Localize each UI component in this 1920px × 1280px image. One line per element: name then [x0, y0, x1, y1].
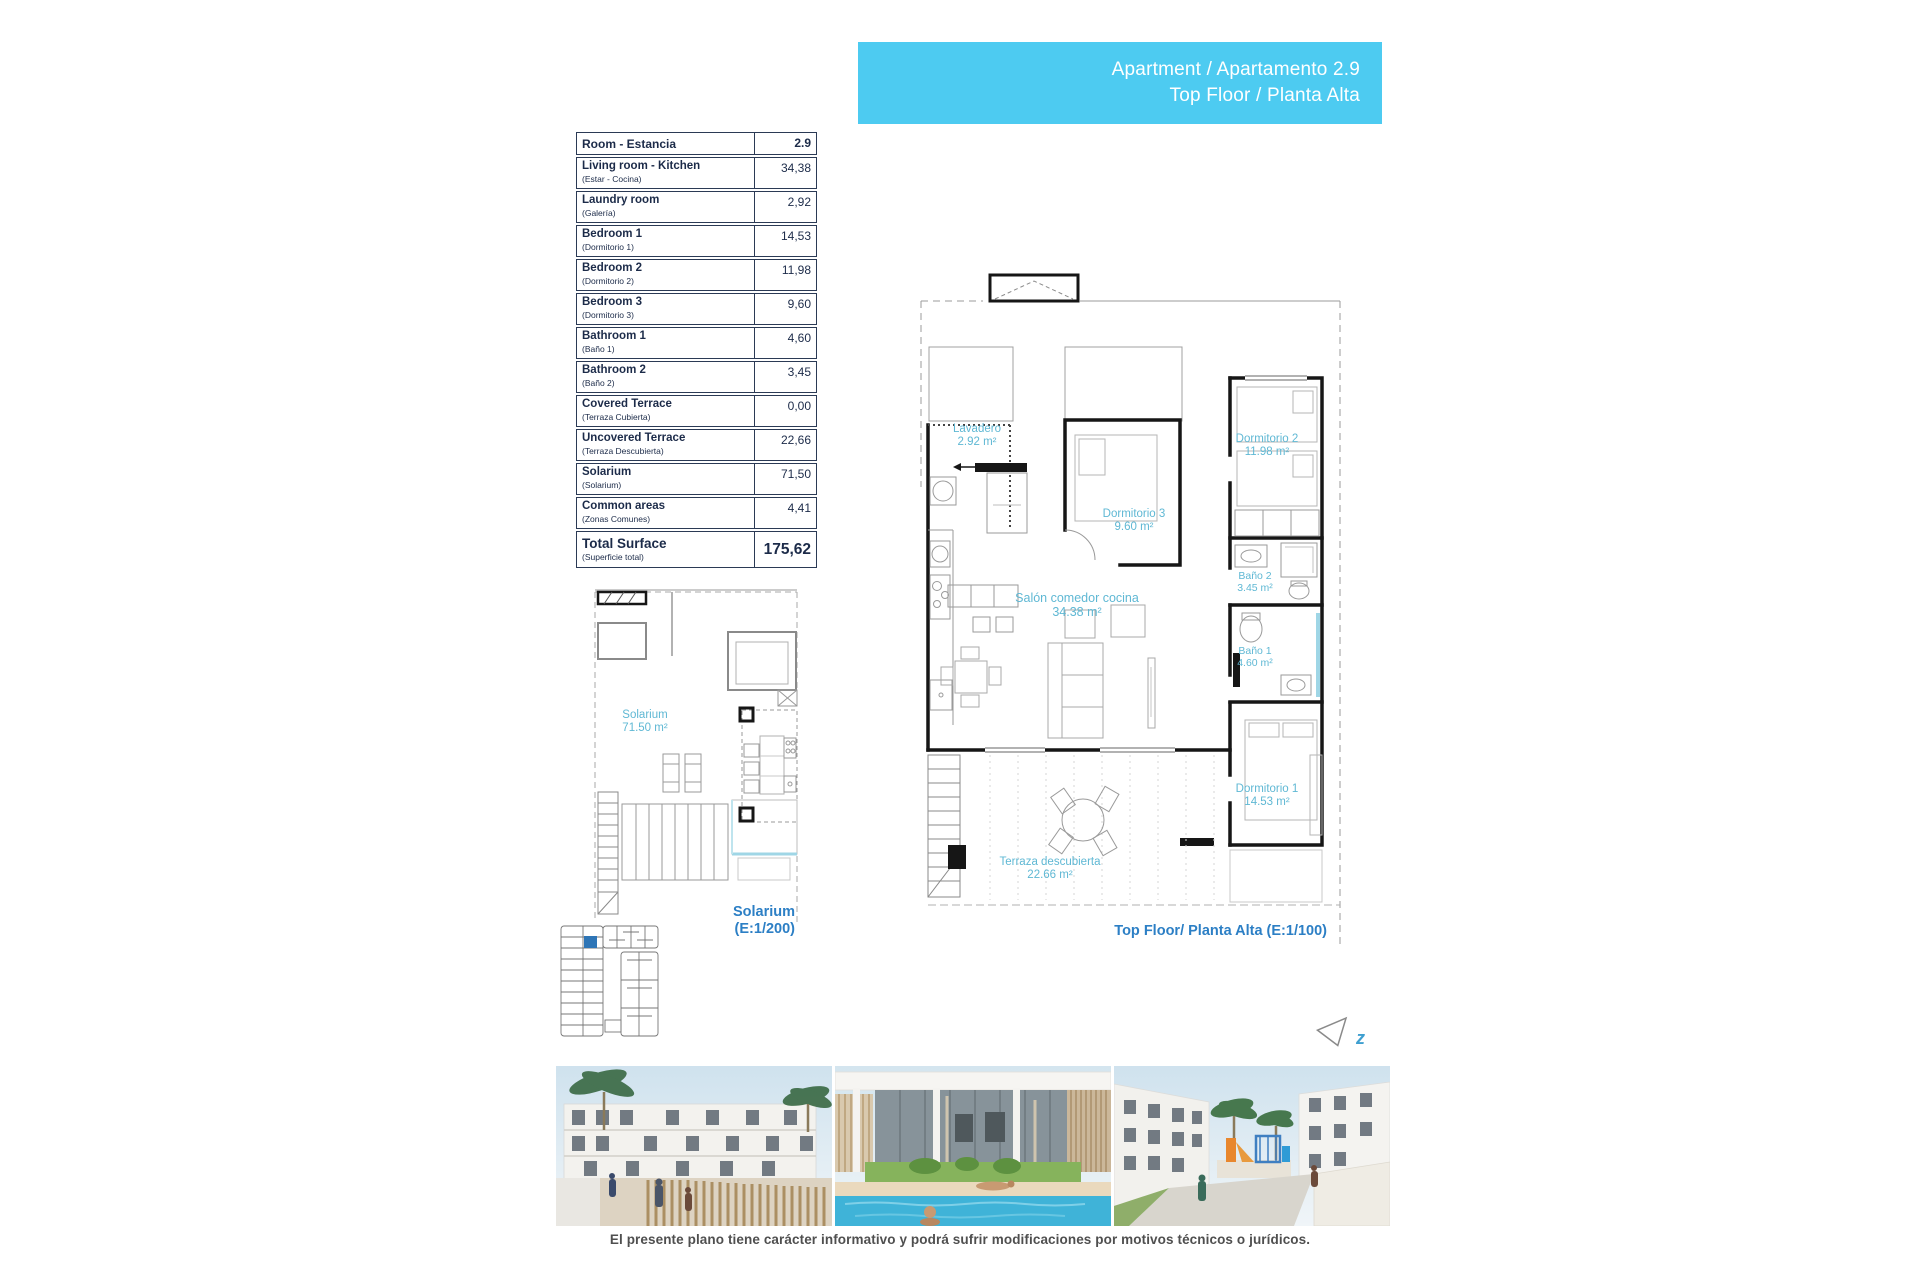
plan-page: Apartment / Apartamento 2.9 Top Floor / …: [0, 0, 1920, 1280]
solarium-area: 71.50 m²: [622, 722, 668, 734]
table-header-unit: 2.9: [755, 133, 816, 154]
row-value: 3,45: [755, 362, 816, 392]
room-area-dormitorio1: 14.53 m²: [1244, 796, 1290, 808]
main-plan-caption: Top Floor/ Planta Alta (E:1/100): [1114, 923, 1327, 939]
row-sublabel: (Baño 1): [582, 344, 750, 355]
north-arrow-letter: z: [1355, 1028, 1365, 1048]
row-value: 71,50: [755, 464, 816, 494]
table-total-row: Total Surface(Superficie total) 175,62: [576, 531, 817, 568]
row-sublabel: (Galería): [582, 208, 750, 219]
table-row: Bedroom 1(Dormitorio 1) 14,53: [576, 225, 817, 257]
room-area-bano2: 3.45 m²: [1237, 582, 1273, 594]
row-label: Bedroom 1: [582, 228, 750, 242]
solarium-caption-line2: (E:1/200): [735, 921, 796, 937]
room-label-salon: Salón comedor cocina: [1015, 591, 1139, 605]
row-label: Common areas: [582, 500, 750, 514]
solarium-label: Solarium: [622, 709, 667, 721]
title-banner: Apartment / Apartamento 2.9 Top Floor / …: [858, 42, 1382, 124]
row-sublabel: (Dormitorio 2): [582, 276, 750, 287]
solarium-stairs: [598, 792, 618, 914]
laundry-fixtures: [930, 463, 1027, 533]
room-label-dormitorio1: Dormitorio 1: [1236, 783, 1299, 795]
kitchen-fixtures: [928, 530, 1018, 725]
row-value: 9,60: [755, 294, 816, 324]
row-label: Uncovered Terrace: [582, 432, 750, 446]
solarium-structures: [598, 592, 797, 706]
row-label: Bathroom 2: [582, 364, 750, 378]
room-area-dormitorio3: 9.60 m²: [1115, 521, 1154, 533]
row-sublabel: (Terraza Descubierta): [582, 446, 750, 457]
row-value: 34,38: [755, 158, 816, 188]
roof-skylight: [990, 275, 1078, 301]
roof-overhangs: [929, 347, 1182, 421]
room-label-terraza: Terraza descubierta: [1000, 856, 1102, 868]
north-arrow-icon: z: [1310, 1016, 1380, 1058]
bedroom1-furniture: [1245, 720, 1322, 835]
solarium-caption-line1: Solarium: [733, 904, 795, 920]
room-area-terraza: 22.66 m²: [1027, 869, 1073, 881]
photo-pool-view: [835, 1066, 1111, 1226]
wardrobe: [1235, 510, 1319, 536]
room-label-bano1: Baño 1: [1238, 645, 1271, 657]
table-row: Bedroom 3(Dormitorio 3) 9,60: [576, 293, 817, 325]
render-photos: [556, 1066, 1390, 1226]
row-value: 4,41: [755, 498, 816, 528]
room-label-bano2: Baño 2: [1238, 570, 1271, 582]
bedroom3-furniture: [1065, 435, 1157, 560]
row-sublabel: (Estar - Cocina): [582, 174, 750, 185]
solarium-plan: Solarium 71.50 m² Solarium (E:1/200): [590, 586, 830, 938]
photo-playground-view: [1114, 1066, 1390, 1226]
key-annex: [605, 1020, 621, 1032]
pergola-slats: [622, 804, 728, 880]
location-key-plan: [557, 922, 662, 1047]
main-floor-plan: Lavadero 2.92 m² Dormitorio 3 9.60 m² Do…: [915, 255, 1355, 955]
row-value: 14,53: [755, 226, 816, 256]
row-value: 0,00: [755, 396, 816, 426]
total-value: 175,62: [755, 532, 816, 567]
table-row: Bedroom 2(Dormitorio 2) 11,98: [576, 259, 817, 291]
row-label: Covered Terrace: [582, 398, 750, 412]
row-label: Laundry room: [582, 194, 750, 208]
room-area-lavadero: 2.92 m²: [958, 436, 997, 448]
row-value: 22,66: [755, 430, 816, 460]
table-row: Covered Terrace(Terraza Cubierta) 0,00: [576, 395, 817, 427]
row-sublabel: (Solarium): [582, 480, 750, 491]
total-sublabel: (Superficie total): [582, 552, 750, 563]
photo-street-view: [556, 1066, 832, 1226]
sun-loungers: [663, 754, 701, 792]
table-row: Bathroom 2(Baño 2) 3,45: [576, 361, 817, 393]
terrace: [928, 755, 1340, 905]
table-row: Laundry room(Galería) 2,92: [576, 191, 817, 223]
row-value: 11,98: [755, 260, 816, 290]
table-header-row: Room - Estancia 2.9: [576, 132, 817, 155]
table-row: Bathroom 1(Baño 1) 4,60: [576, 327, 817, 359]
room-area-bano1: 4.60 m²: [1237, 657, 1273, 669]
row-sublabel: (Baño 2): [582, 378, 750, 389]
room-label-dormitorio2: Dormitorio 2: [1236, 433, 1299, 445]
total-label: Total Surface: [582, 534, 750, 552]
row-label: Bedroom 2: [582, 262, 750, 276]
table-header-room: Room - Estancia: [582, 137, 676, 151]
row-label: Bedroom 3: [582, 296, 750, 310]
row-label: Solarium: [582, 466, 750, 480]
table-row: Solarium(Solarium) 71,50: [576, 463, 817, 495]
table-row: Uncovered Terrace(Terraza Descubierta) 2…: [576, 429, 817, 461]
highlighted-unit: [584, 936, 597, 948]
key-top-wing: [603, 926, 658, 948]
key-right-wing: [621, 952, 658, 1036]
surface-area-table: Room - Estancia 2.9 Living room - Kitche…: [576, 132, 817, 570]
row-value: 4,60: [755, 328, 816, 358]
room-area-salon: 34.38 m²: [1052, 605, 1101, 619]
row-value: 2,92: [755, 192, 816, 222]
room-label-dormitorio3: Dormitorio 3: [1103, 508, 1166, 520]
solarium-outdoor-kitchen: [740, 708, 797, 822]
row-sublabel: (Terraza Cubierta): [582, 412, 750, 423]
banner-floor-line: Top Floor / Planta Alta: [858, 83, 1360, 109]
room-label-lavadero: Lavadero: [953, 423, 1001, 435]
wall-stub: [1180, 838, 1214, 846]
disclaimer-text: El presente plano tiene carácter informa…: [610, 1232, 1310, 1247]
row-label: Bathroom 1: [582, 330, 750, 344]
row-sublabel: (Zonas Comunes): [582, 514, 750, 525]
table-row: Common areas(Zonas Comunes) 4,41: [576, 497, 817, 529]
row-label: Living room - Kitchen: [582, 160, 750, 174]
room-area-dormitorio2: 11.98 m²: [1245, 446, 1290, 458]
stairs: [928, 755, 966, 897]
row-sublabel: (Dormitorio 3): [582, 310, 750, 321]
table-row: Living room - Kitchen(Estar - Cocina) 34…: [576, 157, 817, 189]
banner-apartment-line: Apartment / Apartamento 2.9: [858, 57, 1360, 83]
row-sublabel: (Dormitorio 1): [582, 242, 750, 253]
